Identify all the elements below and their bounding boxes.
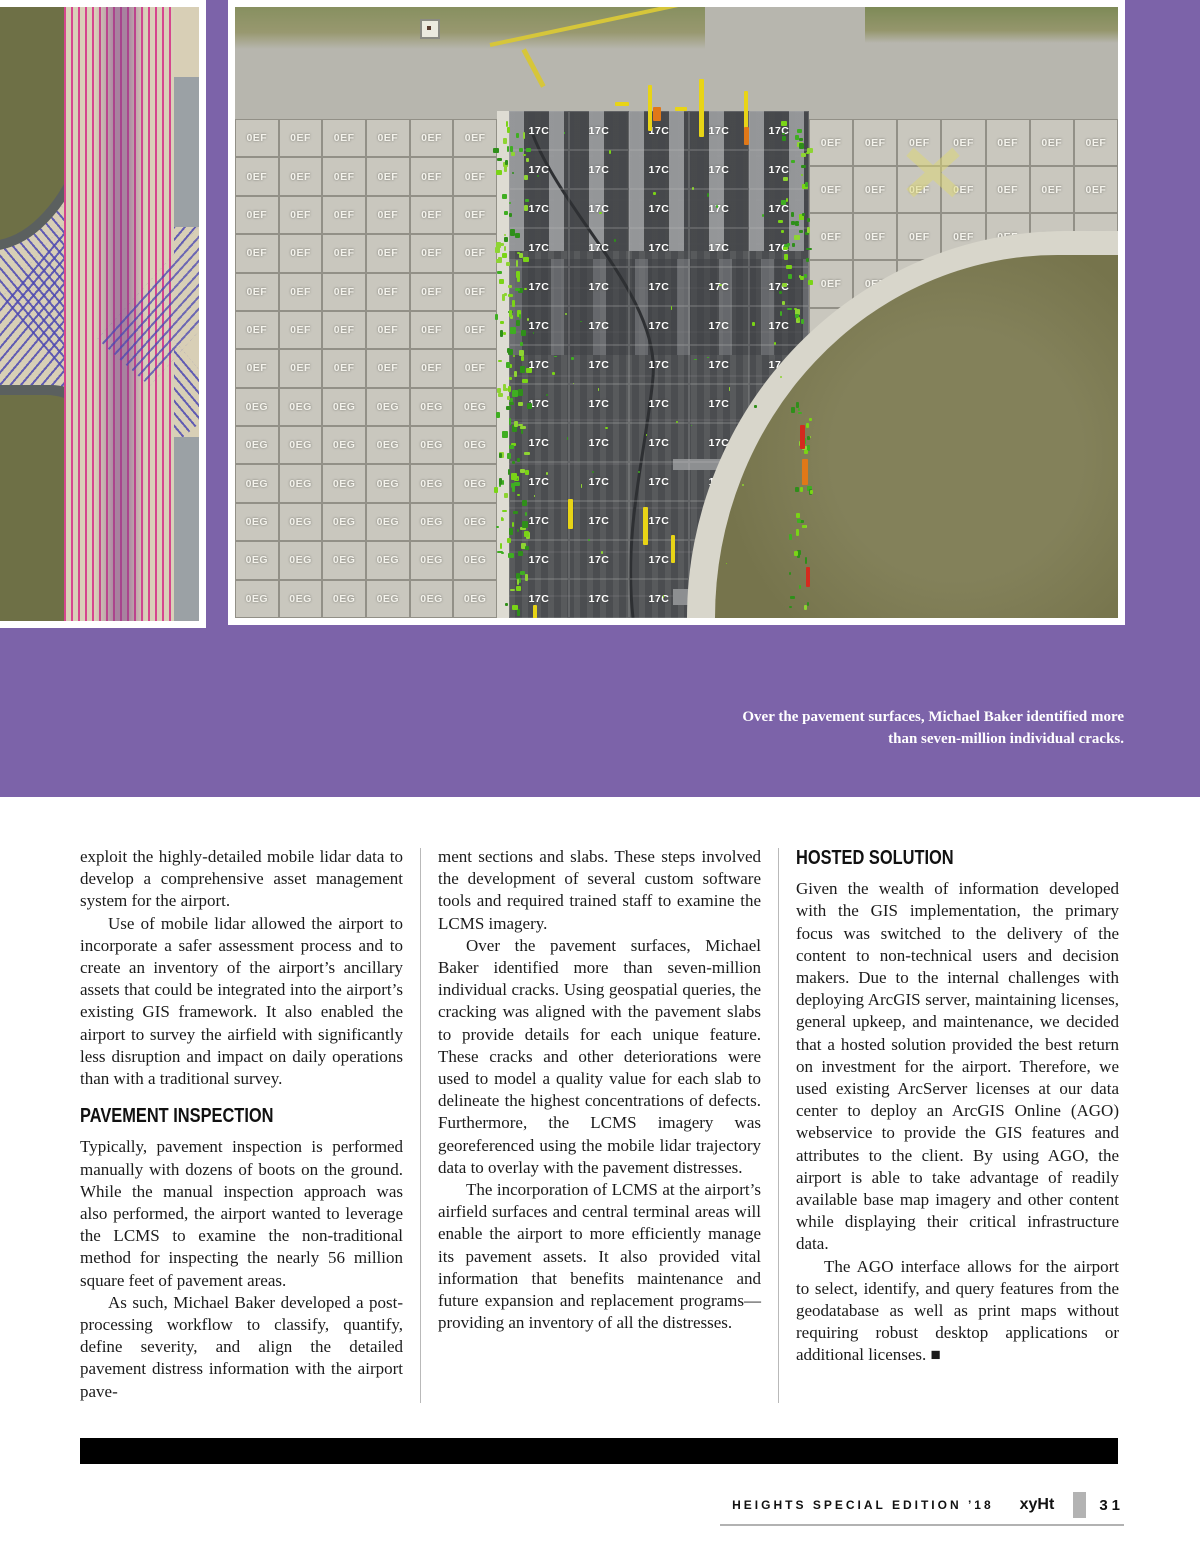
slab-label: 0EF	[421, 362, 442, 374]
slab-label: 17C	[649, 593, 670, 605]
slab-cell: 0EG	[410, 580, 454, 618]
slab-cell: 17C	[509, 150, 569, 189]
slab-label: 0EG	[289, 439, 312, 451]
slab-cell: 17C	[689, 228, 749, 267]
slab-cell: 17C	[629, 501, 689, 540]
slab-cell: 17C	[749, 189, 809, 228]
slab-label: 0EF	[334, 324, 355, 336]
slab-label: 17C	[649, 242, 670, 254]
slab-label: 0EG	[420, 478, 443, 490]
slab-label: 17C	[589, 281, 610, 293]
slab-label: 0EF	[421, 132, 442, 144]
slab-label: 17C	[709, 398, 730, 410]
slab-cell: 0EF	[897, 213, 941, 260]
slab-label: 0EF	[465, 247, 486, 259]
slab-label: 17C	[649, 476, 670, 488]
slab-cell: 0EF	[453, 311, 497, 349]
slab-cell: 0EF	[279, 157, 323, 195]
slab-label: 17C	[589, 125, 610, 137]
slab-cell: 0EF	[322, 119, 366, 157]
slab-label: 0EG	[333, 554, 356, 566]
slab-cell: 0EF	[235, 311, 279, 349]
slab-label: 0EF	[421, 286, 442, 298]
slab-cell: 17C	[569, 306, 629, 345]
footer-divider-block	[1073, 1492, 1086, 1518]
slab-cell: 0EF	[322, 234, 366, 272]
slab-label: 0EF	[465, 209, 486, 221]
slab-cell: 0EG	[279, 388, 323, 426]
xyht-logo: xyHt	[1020, 1496, 1055, 1514]
slab-label: 0EF	[290, 324, 311, 336]
slab-label: 0EF	[290, 362, 311, 374]
slab-label: 17C	[589, 242, 610, 254]
slab-label: 0EG	[246, 401, 269, 413]
magazine-page: 0EF0EF0EF0EF0EF0EF0EF0EF0EF0EF0EF0EF0EF0…	[0, 0, 1200, 1558]
slab-label: 0EF	[334, 171, 355, 183]
slab-label: 17C	[709, 164, 730, 176]
slab-cell: 0EF	[1074, 119, 1118, 166]
slab-label: 0EF	[377, 132, 398, 144]
slab-cell: 17C	[509, 228, 569, 267]
slab-label: 17C	[589, 476, 610, 488]
body-paragraph: As such, Michael Baker developed a post-…	[80, 1292, 403, 1403]
slab-cell: 0EG	[235, 503, 279, 541]
slab-cell: 0EG	[453, 541, 497, 579]
slab-cell: 0EG	[279, 580, 323, 618]
slab-label: 0EF	[865, 184, 886, 196]
slab-label: 0EG	[464, 554, 487, 566]
slab-label: 0EG	[420, 554, 443, 566]
slab-label: 0EG	[420, 439, 443, 451]
slab-label: 0EF	[290, 171, 311, 183]
slab-label: 0EF	[246, 132, 267, 144]
slab-cell: 0EF	[366, 349, 410, 387]
section-heading: HOSTED SOLUTION	[796, 847, 1054, 869]
slab-cell: 0EF	[279, 234, 323, 272]
slab-cell: 0EG	[366, 388, 410, 426]
slab-cell: 17C	[689, 384, 749, 423]
slab-cell: 17C	[569, 462, 629, 501]
slab-cell: 0EF	[809, 166, 853, 213]
slab-label: 17C	[709, 125, 730, 137]
slab-cell: 0EF	[235, 196, 279, 234]
slab-label: 0EF	[246, 247, 267, 259]
slab-label: 0EF	[377, 171, 398, 183]
slab-cell: 17C	[749, 306, 809, 345]
slab-label: 0EF	[465, 362, 486, 374]
slab-label: 17C	[529, 359, 550, 371]
slab-label: 0EG	[464, 401, 487, 413]
slab-cell: 0EG	[235, 580, 279, 618]
slab-cell: 17C	[569, 540, 629, 579]
slab-zone-apron-left: 0EF0EF0EF0EF0EF0EF0EF0EF0EF0EF0EF0EF0EF0…	[235, 119, 497, 618]
slab-cell: 0EF	[366, 196, 410, 234]
slab-cell: 0EF	[410, 196, 454, 234]
slab-label: 0EF	[290, 247, 311, 259]
slab-cell: 0EF	[410, 157, 454, 195]
slab-label: 0EF	[821, 278, 842, 290]
slab-label: 0EF	[246, 324, 267, 336]
page-footer: HEIGHTS SPECIAL EDITION ’18 xyHt 31	[720, 1492, 1124, 1526]
slab-label: 17C	[529, 281, 550, 293]
slab-cell: 0EF	[853, 213, 897, 260]
slab-cell: 0EF	[453, 273, 497, 311]
bottom-rule-bar	[80, 1438, 1118, 1464]
slab-cell: 0EG	[366, 503, 410, 541]
slab-cell: 17C	[629, 189, 689, 228]
slab-cell: 17C	[689, 150, 749, 189]
slab-cell: 17C	[629, 111, 689, 150]
slab-label: 17C	[529, 125, 550, 137]
slab-label: 0EF	[377, 362, 398, 374]
slab-label: 0EF	[246, 209, 267, 221]
body-paragraph: ment sections and slabs. These steps inv…	[438, 846, 761, 935]
slab-cell: 0EF	[853, 119, 897, 166]
slab-cell: 0EF	[366, 311, 410, 349]
article-column-2: ment sections and slabs. These steps inv…	[438, 846, 761, 1403]
slab-label: 17C	[769, 203, 790, 215]
article-column-3: HOSTED SOLUTIONGiven the wealth of infor…	[796, 846, 1119, 1403]
slab-cell: 17C	[629, 345, 689, 384]
slab-label: 0EF	[821, 137, 842, 149]
slab-label: 0EG	[464, 439, 487, 451]
slab-label: 17C	[649, 398, 670, 410]
column-divider	[778, 848, 779, 1403]
slab-label: 17C	[589, 593, 610, 605]
slab-cell: 0EF	[809, 260, 853, 307]
slab-label: 0EF	[1086, 184, 1107, 196]
slab-cell: 0EG	[322, 388, 366, 426]
slab-cell: 17C	[629, 384, 689, 423]
slab-label: 17C	[649, 203, 670, 215]
slab-cell: 17C	[629, 579, 689, 618]
slab-label: 0EG	[420, 593, 443, 605]
slab-cell: 17C	[749, 267, 809, 306]
slab-label: 0EF	[997, 184, 1018, 196]
slab-cell: 0EF	[366, 119, 410, 157]
slab-label: 17C	[649, 281, 670, 293]
slab-cell: 0EG	[453, 388, 497, 426]
slab-label: 17C	[529, 593, 550, 605]
slab-label: 0EG	[377, 439, 400, 451]
slab-cell: 0EF	[453, 157, 497, 195]
slab-label: 0EF	[465, 286, 486, 298]
slab-label: 17C	[529, 437, 550, 449]
body-paragraph: The AGO interface allows for the airport…	[796, 1256, 1119, 1367]
slab-cell: 0EF	[410, 273, 454, 311]
slab-label: 0EF	[290, 286, 311, 298]
slab-label: 17C	[649, 359, 670, 371]
slab-label: 17C	[649, 554, 670, 566]
slab-label: 0EG	[464, 593, 487, 605]
slab-cell: 0EF	[322, 157, 366, 195]
slab-cell: 17C	[569, 384, 629, 423]
slab-cell: 0EF	[1030, 119, 1074, 166]
slab-cell: 17C	[689, 267, 749, 306]
slab-cell: 0EF	[322, 349, 366, 387]
slab-cell: 0EG	[366, 464, 410, 502]
slab-cell: 0EG	[279, 464, 323, 502]
slab-cell: 0EF	[1074, 166, 1118, 213]
slab-cell: 0EG	[410, 388, 454, 426]
slab-label: 17C	[649, 164, 670, 176]
slab-cell: 0EF	[322, 196, 366, 234]
slab-cell: 0EG	[366, 580, 410, 618]
slab-label: 17C	[529, 515, 550, 527]
slab-cell: 0EF	[453, 349, 497, 387]
slab-label: 0EF	[865, 231, 886, 243]
slab-label: 0EF	[465, 132, 486, 144]
slab-cell: 17C	[509, 306, 569, 345]
slab-cell: 17C	[749, 150, 809, 189]
slab-cell: 0EF	[279, 196, 323, 234]
slab-cell: 0EF	[1030, 166, 1074, 213]
slab-label: 0EF	[421, 171, 442, 183]
slab-label: 17C	[589, 320, 610, 332]
slab-cell: 17C	[509, 540, 569, 579]
slab-cell: 0EF	[986, 119, 1030, 166]
slab-cell: 0EF	[809, 213, 853, 260]
slab-cell: 0EF	[279, 273, 323, 311]
slab-label: 17C	[709, 320, 730, 332]
slab-cell: 0EF	[235, 273, 279, 311]
slab-label: 0EF	[290, 209, 311, 221]
slab-cell: 17C	[509, 423, 569, 462]
slab-label: 17C	[589, 398, 610, 410]
slab-label: 17C	[769, 164, 790, 176]
slab-cell: 0EG	[453, 426, 497, 464]
slab-cell: 0EG	[322, 426, 366, 464]
slab-label: 17C	[589, 359, 610, 371]
slab-label: 17C	[529, 554, 550, 566]
slab-label: 0EF	[997, 137, 1018, 149]
slab-cell: 17C	[629, 150, 689, 189]
body-paragraph: The incorporation of LCMS at the airport…	[438, 1179, 761, 1334]
slab-cell: 0EF	[235, 349, 279, 387]
footer-edition-text: HEIGHTS SPECIAL EDITION ’18	[732, 1498, 993, 1512]
slab-label: 17C	[649, 125, 670, 137]
body-paragraph: Use of mobile lidar allowed the airport …	[80, 913, 403, 1091]
slab-label: 0EF	[377, 209, 398, 221]
slab-label: 17C	[769, 125, 790, 137]
slab-label: 17C	[589, 203, 610, 215]
page-number: 31	[1099, 1497, 1124, 1514]
slab-label: 0EF	[465, 324, 486, 336]
closed-marking-x	[897, 141, 967, 201]
slab-cell: 17C	[689, 306, 749, 345]
slab-label: 17C	[529, 320, 550, 332]
slab-label: 17C	[769, 242, 790, 254]
slab-cell: 17C	[689, 189, 749, 228]
slab-cell: 0EF	[279, 311, 323, 349]
slab-cell: 17C	[509, 267, 569, 306]
slab-label: 0EG	[246, 478, 269, 490]
slab-cell: 17C	[689, 345, 749, 384]
slab-label: 0EG	[377, 401, 400, 413]
slab-cell: 17C	[629, 228, 689, 267]
slab-cell: 0EG	[235, 464, 279, 502]
slab-label: 0EF	[1041, 184, 1062, 196]
purple-hero-band: 0EF0EF0EF0EF0EF0EF0EF0EF0EF0EF0EF0EF0EF0…	[0, 0, 1200, 797]
body-paragraph: exploit the highly-detailed mobile lidar…	[80, 846, 403, 913]
slab-cell: 0EG	[453, 464, 497, 502]
slab-cell: 0EF	[235, 157, 279, 195]
article-columns: exploit the highly-detailed mobile lidar…	[80, 846, 1124, 1403]
slab-label: 17C	[529, 242, 550, 254]
slab-label: 0EF	[377, 286, 398, 298]
slab-cell: 17C	[629, 267, 689, 306]
slab-cell: 0EG	[453, 580, 497, 618]
slab-label: 0EG	[289, 516, 312, 528]
slab-label: 0EG	[246, 593, 269, 605]
slab-cell: 17C	[509, 462, 569, 501]
slab-label: 0EG	[377, 516, 400, 528]
slab-label: 0EF	[1041, 137, 1062, 149]
slab-cell: 17C	[569, 189, 629, 228]
slab-label: 17C	[709, 203, 730, 215]
slab-label: 17C	[649, 320, 670, 332]
slab-label: 0EG	[246, 554, 269, 566]
slab-label: 0EG	[464, 516, 487, 528]
slab-label: 0EF	[1086, 137, 1107, 149]
article-column-1: exploit the highly-detailed mobile lidar…	[80, 846, 403, 1403]
slab-label: 0EG	[333, 593, 356, 605]
slab-cell: 17C	[749, 228, 809, 267]
slab-label: 17C	[589, 437, 610, 449]
slab-cell: 0EF	[986, 166, 1030, 213]
slab-cell: 0EG	[322, 541, 366, 579]
slab-cell: 17C	[749, 111, 809, 150]
slab-label: 0EG	[420, 401, 443, 413]
slab-cell: 0EF	[410, 311, 454, 349]
slab-label: 0EG	[464, 478, 487, 490]
slab-cell: 0EF	[809, 119, 853, 166]
slab-cell: 0EG	[410, 464, 454, 502]
slab-label: 0EF	[377, 247, 398, 259]
slab-label: 0EG	[333, 478, 356, 490]
slab-label: 0EF	[246, 362, 267, 374]
column-divider	[420, 848, 421, 1403]
body-paragraph: Given the wealth of information develope…	[796, 878, 1119, 1255]
pavement-grid-photo: 0EF0EF0EF0EF0EF0EF0EF0EF0EF0EF0EF0EF0EF0…	[228, 0, 1125, 625]
slab-cell: 17C	[509, 345, 569, 384]
slab-cell: 0EF	[410, 119, 454, 157]
slab-cell: 0EF	[322, 311, 366, 349]
slab-label: 17C	[649, 437, 670, 449]
photo-caption: Over the pavement surfaces, Michael Bake…	[724, 707, 1124, 751]
slab-label: 17C	[709, 281, 730, 293]
slab-label: 0EF	[421, 247, 442, 259]
slab-cell: 0EG	[410, 503, 454, 541]
slab-label: 17C	[649, 515, 670, 527]
slab-label: 17C	[589, 554, 610, 566]
slab-label: 0EF	[334, 362, 355, 374]
slab-label: 0EF	[821, 231, 842, 243]
slab-label: 17C	[589, 515, 610, 527]
slab-label: 0EF	[246, 286, 267, 298]
slab-cell: 17C	[509, 384, 569, 423]
slab-cell: 0EG	[235, 426, 279, 464]
slab-label: 0EG	[377, 554, 400, 566]
slab-cell: 17C	[509, 501, 569, 540]
slab-label: 0EF	[377, 324, 398, 336]
slab-cell: 17C	[569, 267, 629, 306]
slab-cell: 0EF	[410, 349, 454, 387]
slab-cell: 17C	[629, 462, 689, 501]
slab-label: 0EF	[246, 171, 267, 183]
slab-cell: 0EF	[235, 119, 279, 157]
slab-cell: 17C	[569, 345, 629, 384]
slab-label: 0EG	[420, 516, 443, 528]
slab-label: 17C	[529, 476, 550, 488]
slab-label: 17C	[529, 398, 550, 410]
slab-label: 17C	[529, 164, 550, 176]
slab-cell: 0EF	[453, 119, 497, 157]
slab-label: 0EG	[289, 554, 312, 566]
slab-cell: 0EG	[279, 503, 323, 541]
slab-cell: 0EG	[366, 426, 410, 464]
slab-cell: 17C	[509, 111, 569, 150]
slab-cell: 0EG	[279, 541, 323, 579]
slab-label: 0EG	[333, 439, 356, 451]
slab-cell: 0EF	[235, 234, 279, 272]
slab-label: 0EF	[334, 286, 355, 298]
slab-cell: 0EG	[322, 580, 366, 618]
slab-label: 17C	[769, 281, 790, 293]
slab-label: 0EF	[465, 171, 486, 183]
slab-cell: 17C	[569, 150, 629, 189]
slab-label: 0EF	[290, 132, 311, 144]
lidar-trajectory-photo	[0, 0, 206, 628]
slab-label: 0EG	[333, 516, 356, 528]
slab-cell: 17C	[569, 579, 629, 618]
slab-cell: 17C	[509, 189, 569, 228]
slab-label: 0EF	[909, 231, 930, 243]
slab-label: 0EF	[334, 209, 355, 221]
slab-label: 0EG	[377, 478, 400, 490]
body-paragraph: Typically, pavement inspection is perfor…	[80, 1136, 403, 1291]
slab-label: 0EF	[953, 231, 974, 243]
slab-label: 17C	[709, 242, 730, 254]
slab-label: 17C	[589, 164, 610, 176]
slab-label: 17C	[769, 320, 790, 332]
slab-cell: 17C	[569, 423, 629, 462]
slab-label: 0EF	[334, 132, 355, 144]
slab-cell: 0EF	[279, 119, 323, 157]
slab-cell: 17C	[569, 501, 629, 540]
slab-cell: 0EG	[410, 541, 454, 579]
section-heading: PAVEMENT INSPECTION	[80, 1105, 338, 1127]
slab-label: 0EG	[377, 593, 400, 605]
slab-cell: 17C	[629, 540, 689, 579]
slab-cell: 0EG	[235, 388, 279, 426]
slab-cell: 0EG	[235, 541, 279, 579]
slab-label: 0EF	[421, 324, 442, 336]
slab-cell: 0EF	[410, 234, 454, 272]
slab-cell: 0EG	[322, 503, 366, 541]
slab-cell: 17C	[569, 228, 629, 267]
slab-cell: 0EG	[322, 464, 366, 502]
slab-label: 0EF	[865, 137, 886, 149]
slab-cell: 0EG	[366, 541, 410, 579]
slab-label: 0EF	[821, 184, 842, 196]
slab-label: 0EG	[289, 593, 312, 605]
slab-cell: 0EF	[366, 273, 410, 311]
slab-label: 0EG	[246, 439, 269, 451]
slab-label: 0EG	[333, 401, 356, 413]
slab-cell: 0EG	[279, 426, 323, 464]
slab-label: 0EF	[334, 247, 355, 259]
